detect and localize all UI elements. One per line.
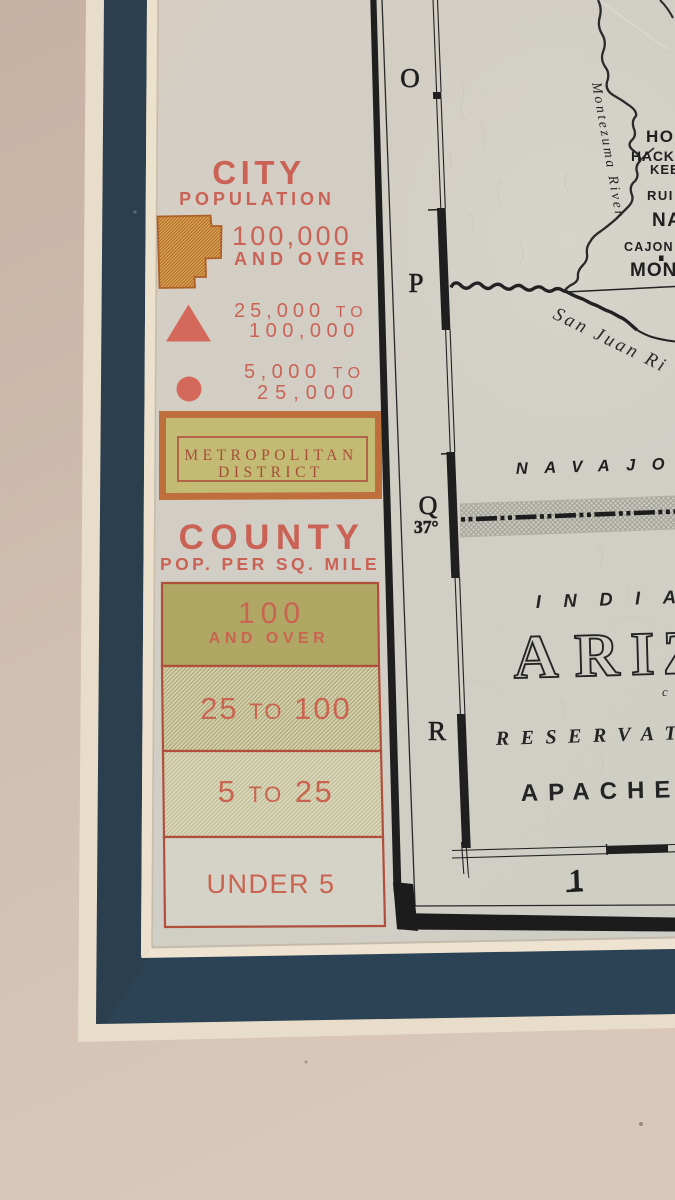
svg-text:100: 100 xyxy=(238,597,306,630)
svg-text:100,000: 100,000 xyxy=(232,221,352,251)
svg-text:AND OVER: AND OVER xyxy=(234,249,369,269)
svg-text:c: c xyxy=(662,684,668,699)
svg-text:DISTRICT: DISTRICT xyxy=(218,464,324,481)
svg-text:25,000: 25,000 xyxy=(257,382,360,404)
svg-text:37°: 37° xyxy=(414,517,439,537)
svg-text:100,000: 100,000 xyxy=(249,320,360,342)
svg-text:RUI: RUI xyxy=(647,188,674,203)
svg-text:R: R xyxy=(428,716,446,746)
svg-text:UNDER 5: UNDER 5 xyxy=(206,869,335,899)
svg-text:KEE: KEE xyxy=(650,162,675,177)
svg-text:HO: HO xyxy=(646,127,675,146)
svg-text:APACHE: APACHE xyxy=(520,776,675,807)
svg-text:25,000 TO: 25,000 TO xyxy=(234,300,368,322)
svg-text:Q: Q xyxy=(419,491,438,520)
svg-text:5,000 TO: 5,000 TO xyxy=(244,361,366,383)
svg-text:CAJON: CAJON xyxy=(624,240,674,254)
svg-text:MON: MON xyxy=(630,260,675,281)
svg-text:NA: NA xyxy=(652,210,675,231)
svg-text:AND OVER: AND OVER xyxy=(209,630,329,647)
svg-text:P: P xyxy=(408,268,423,298)
svg-text:ARIZ: ARIZ xyxy=(512,619,675,692)
svg-text:COUNTY: COUNTY xyxy=(179,518,366,557)
svg-text:POPULATION: POPULATION xyxy=(179,189,335,209)
svg-text:METROPOLITAN: METROPOLITAN xyxy=(184,447,357,464)
svg-text:POP. PER SQ. MILE: POP. PER SQ. MILE xyxy=(160,554,380,574)
svg-text:CITY: CITY xyxy=(212,154,306,191)
svg-text:O: O xyxy=(400,63,420,93)
